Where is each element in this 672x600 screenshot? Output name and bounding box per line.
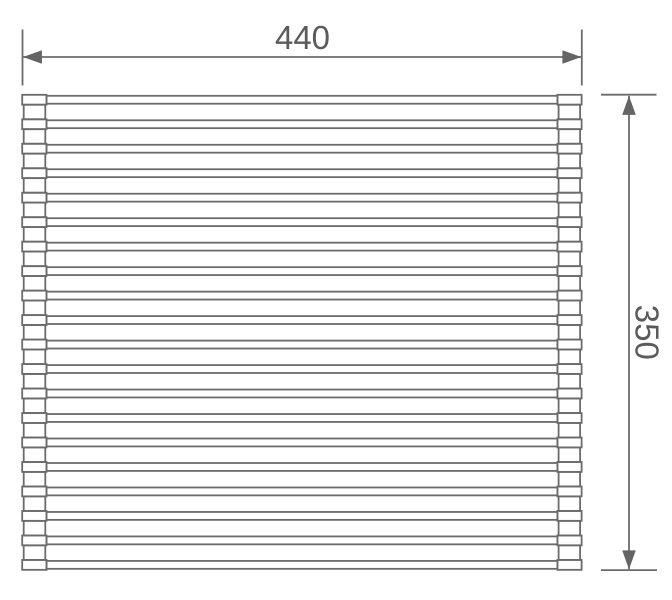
- svg-text:440: 440: [275, 19, 330, 56]
- svg-text:350: 350: [629, 305, 666, 360]
